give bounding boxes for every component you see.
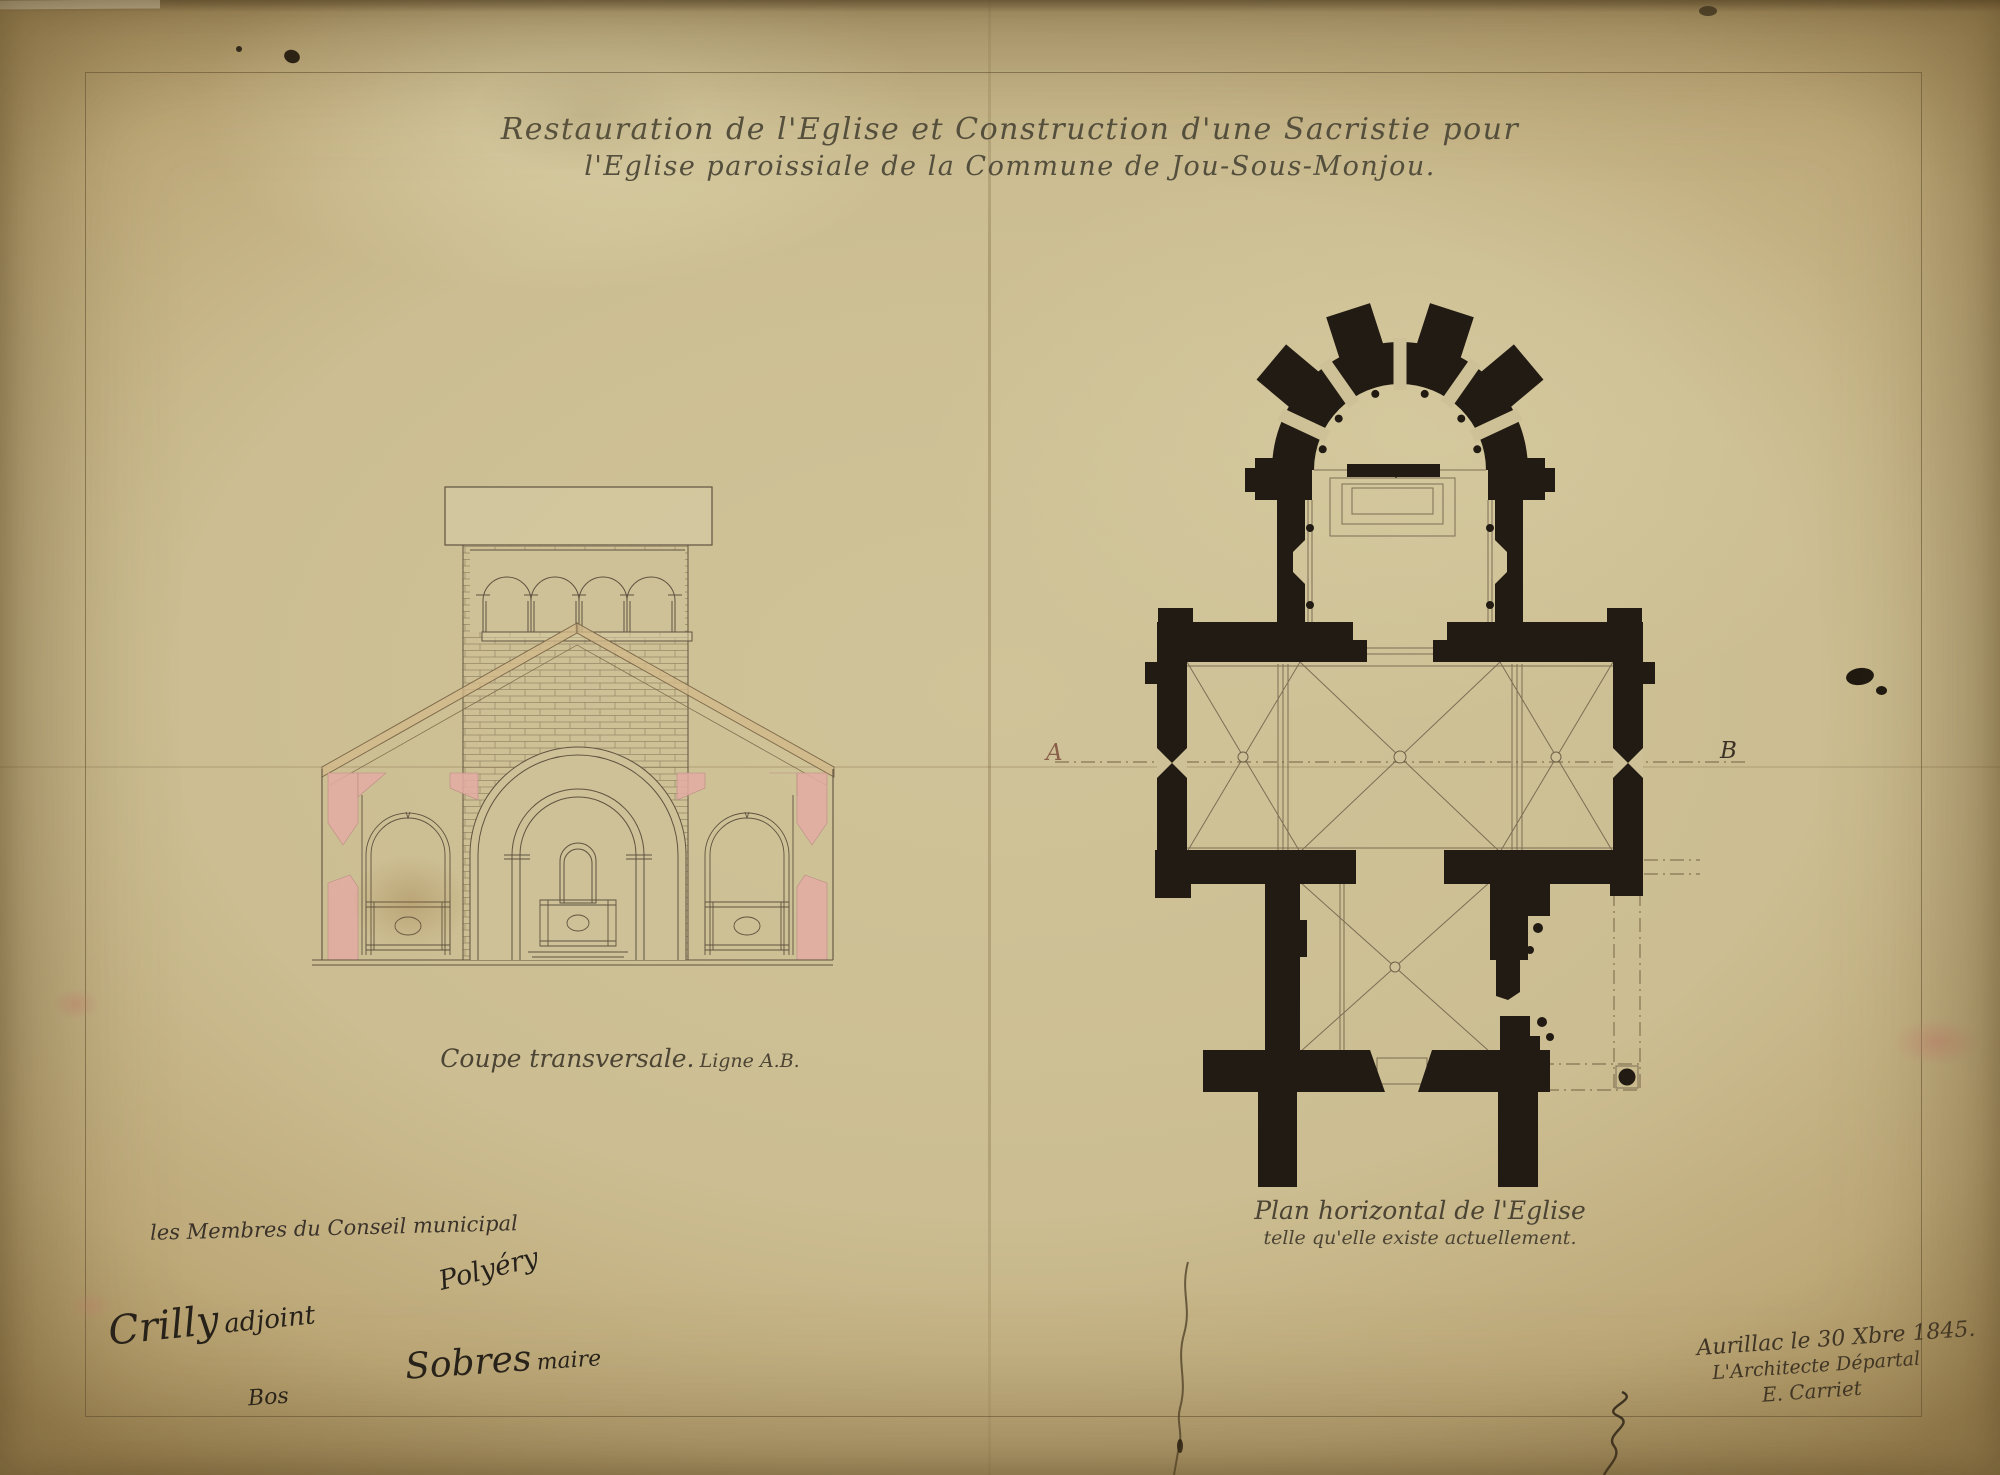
section-marker-b: B [1720, 738, 1737, 764]
ink-speck [236, 46, 242, 52]
title-block: Restauration de l'Eglise et Construction… [470, 112, 1550, 182]
signature-maire-role: maire [536, 1346, 602, 1375]
title-line-2: l'Eglise paroissiale de la Commune de Jo… [470, 151, 1550, 182]
section-caption-suffix: Ligne A.B. [700, 1050, 800, 1072]
title-line-1: Restauration de l'Eglise et Construction… [470, 112, 1550, 147]
paper-corner-sliver [0, 0, 160, 10]
paper-tear [1150, 1262, 1210, 1475]
signature-bos: Bos [247, 1384, 289, 1412]
paper-top-edge [0, 0, 2000, 12]
signature-adjoint-role: adjoint [223, 1300, 317, 1339]
ink-blot [282, 48, 301, 66]
section-caption: Coupe transversale. Ligne A.B. [430, 1044, 810, 1073]
plan-drawing [1040, 300, 1760, 1220]
plan-caption-line-1: Plan horizontal de l'Eglise [1180, 1196, 1660, 1225]
section-caption-text: Coupe transversale. [440, 1044, 694, 1073]
signature-flourish [1560, 1390, 1650, 1475]
plan-caption: Plan horizontal de l'Eglise telle qu'ell… [1180, 1196, 1660, 1249]
plan-caption-line-2: telle qu'elle existe actuellement. [1180, 1227, 1660, 1249]
drawing-sheet: Restauration de l'Eglise et Construction… [0, 0, 2000, 1475]
section-drawing [300, 455, 845, 1015]
section-marker-a: A [1046, 740, 1063, 766]
